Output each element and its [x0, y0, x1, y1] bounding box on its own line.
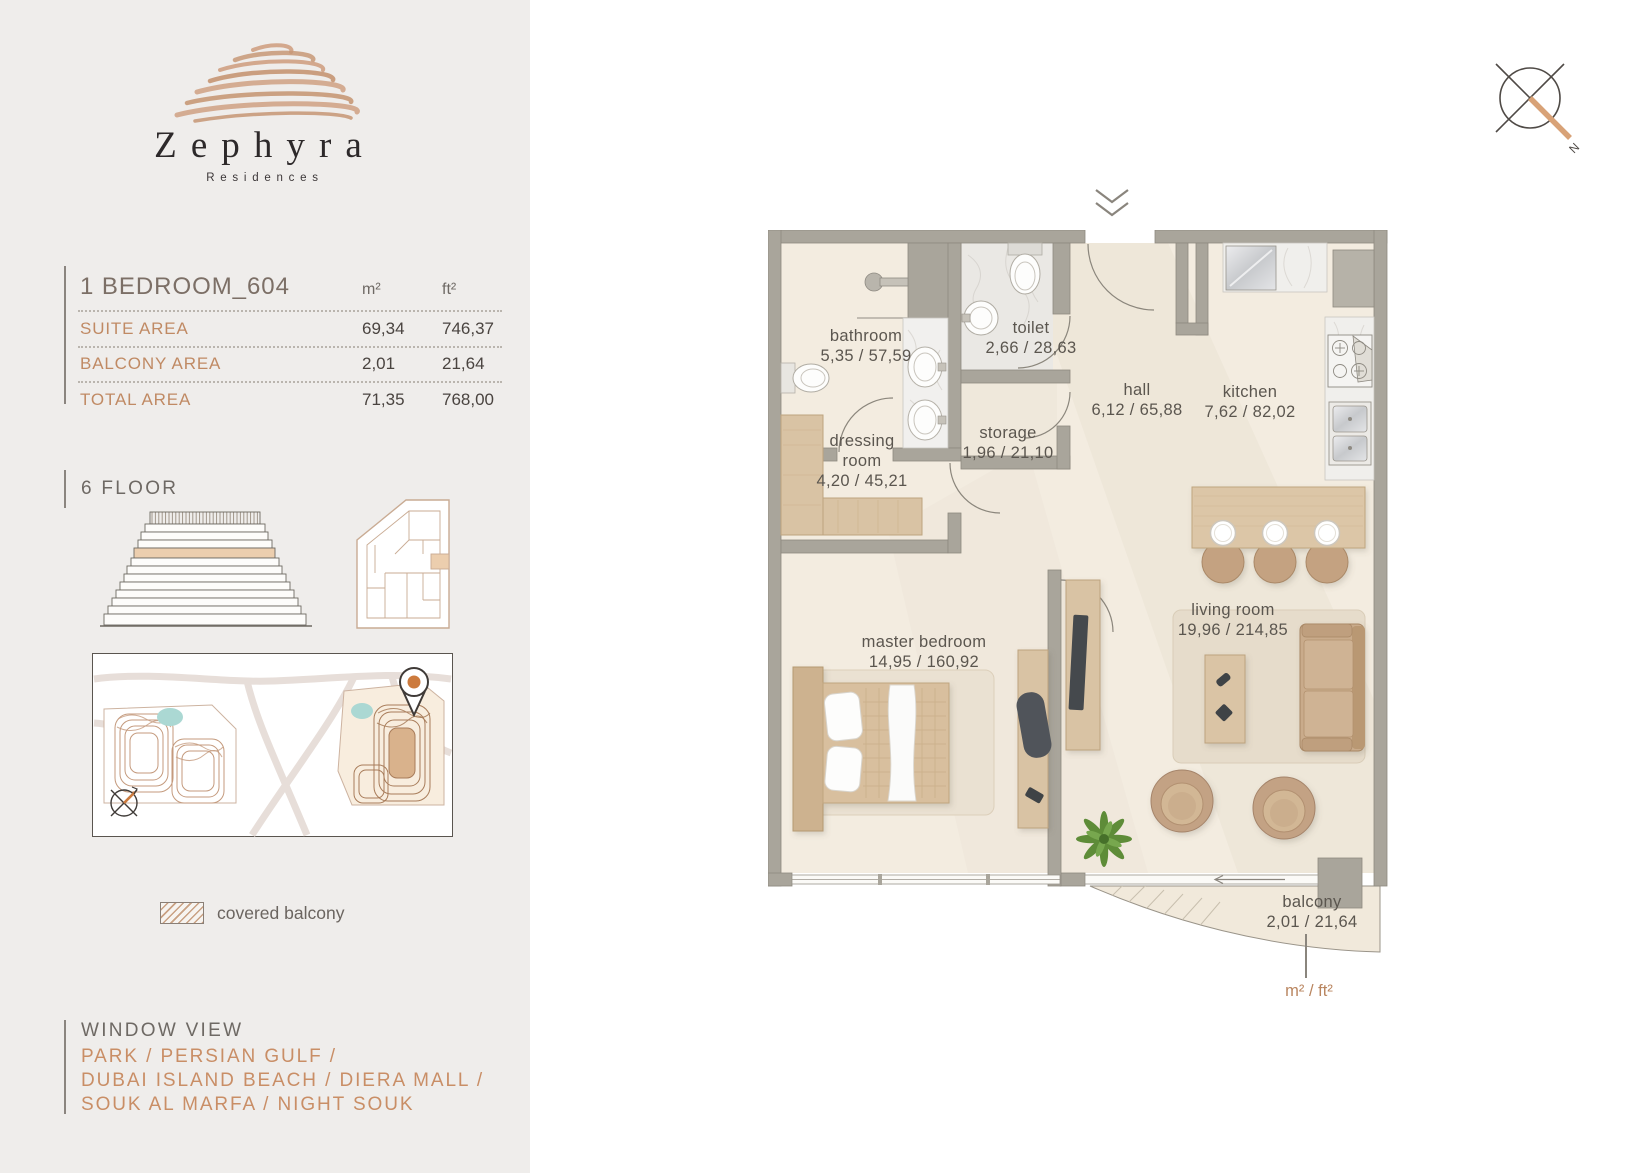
brand-tagline: Residences: [65, 172, 465, 184]
map-subject-plot: [338, 683, 444, 805]
suite-m2: 69,34: [362, 319, 405, 339]
room-label-living-room: living room 19,96 / 214,85: [1178, 600, 1288, 640]
room-label-balcony: balcony 2,01 / 21,64: [1266, 892, 1357, 932]
floor-label: 6 FLOOR: [81, 478, 178, 500]
north-compass-icon: N: [1488, 52, 1626, 166]
room-label-bathroom: bathroom 5,35 / 57,59: [820, 326, 911, 366]
floorplan-brochure-page: Zephyra Residences 1 BEDROOM_604 m² ft² …: [0, 0, 1626, 1173]
map-neighbor-buildings: [104, 705, 236, 803]
covered-balcony-label: covered balcony: [217, 903, 344, 924]
total-m2: 71,35: [362, 390, 405, 410]
window-view-line: PARK / PERSIAN GULF /: [81, 1046, 337, 1068]
window-view-title: WINDOW VIEW: [81, 1020, 243, 1042]
floor-rule: [64, 470, 66, 508]
balcony-m2: 2,01: [362, 354, 395, 374]
divider: [78, 346, 502, 348]
col-header-ft2: ft²: [442, 281, 456, 299]
units-note-line: [1305, 934, 1307, 978]
windows: [792, 874, 1318, 885]
room-label-master-bedroom: master bedroom 14,95 / 160,92: [862, 632, 987, 672]
plant: [1076, 811, 1132, 867]
brand-name: Zephyra: [65, 124, 465, 167]
room-label-kitchen: kitchen 7,62 / 82,02: [1204, 382, 1295, 422]
row-label-balcony: BALCONY AREA: [80, 354, 221, 374]
divider: [78, 381, 502, 383]
unit-highlight: [431, 554, 449, 569]
logo-scribble-icon: [165, 40, 365, 132]
suite-ft2: 746,37: [442, 319, 494, 339]
divider: [78, 310, 502, 312]
unit-title: 1 BEDROOM_604: [80, 273, 290, 301]
row-label-total: TOTAL AREA: [80, 390, 191, 410]
covered-balcony-swatch: [160, 902, 204, 924]
window-view-line: SOUK AL MARFA / NIGHT SOUK: [81, 1094, 414, 1116]
window-view-rule: [64, 1020, 66, 1114]
row-label-suite: SUITE AREA: [80, 319, 189, 339]
room-label-hall: hall 6,12 / 65,88: [1091, 380, 1182, 420]
room-label-toilet: toilet 2,66 / 28,63: [985, 318, 1076, 358]
table-rule: [64, 266, 66, 404]
location-map: [92, 653, 453, 837]
col-header-m2: m²: [362, 281, 381, 299]
building-elevation-diagram: [100, 498, 312, 634]
balcony-ft2: 21,64: [442, 354, 485, 374]
entry-chevron-icon: [1093, 188, 1131, 220]
room-label-dressing-room: dressing room 4,20 / 45,21: [812, 431, 912, 491]
svg-text:N: N: [1566, 140, 1582, 156]
sidebar: Zephyra Residences 1 BEDROOM_604 m² ft² …: [0, 0, 530, 1173]
total-ft2: 768,00: [442, 390, 494, 410]
room-label-storage: storage 1,96 / 21,10: [962, 423, 1053, 463]
floor-keyplan-diagram: [345, 478, 457, 630]
units-note: m² / ft²: [1285, 982, 1333, 1001]
window-view-line: DUBAI ISLAND BEACH / DIERA MALL /: [81, 1070, 484, 1092]
